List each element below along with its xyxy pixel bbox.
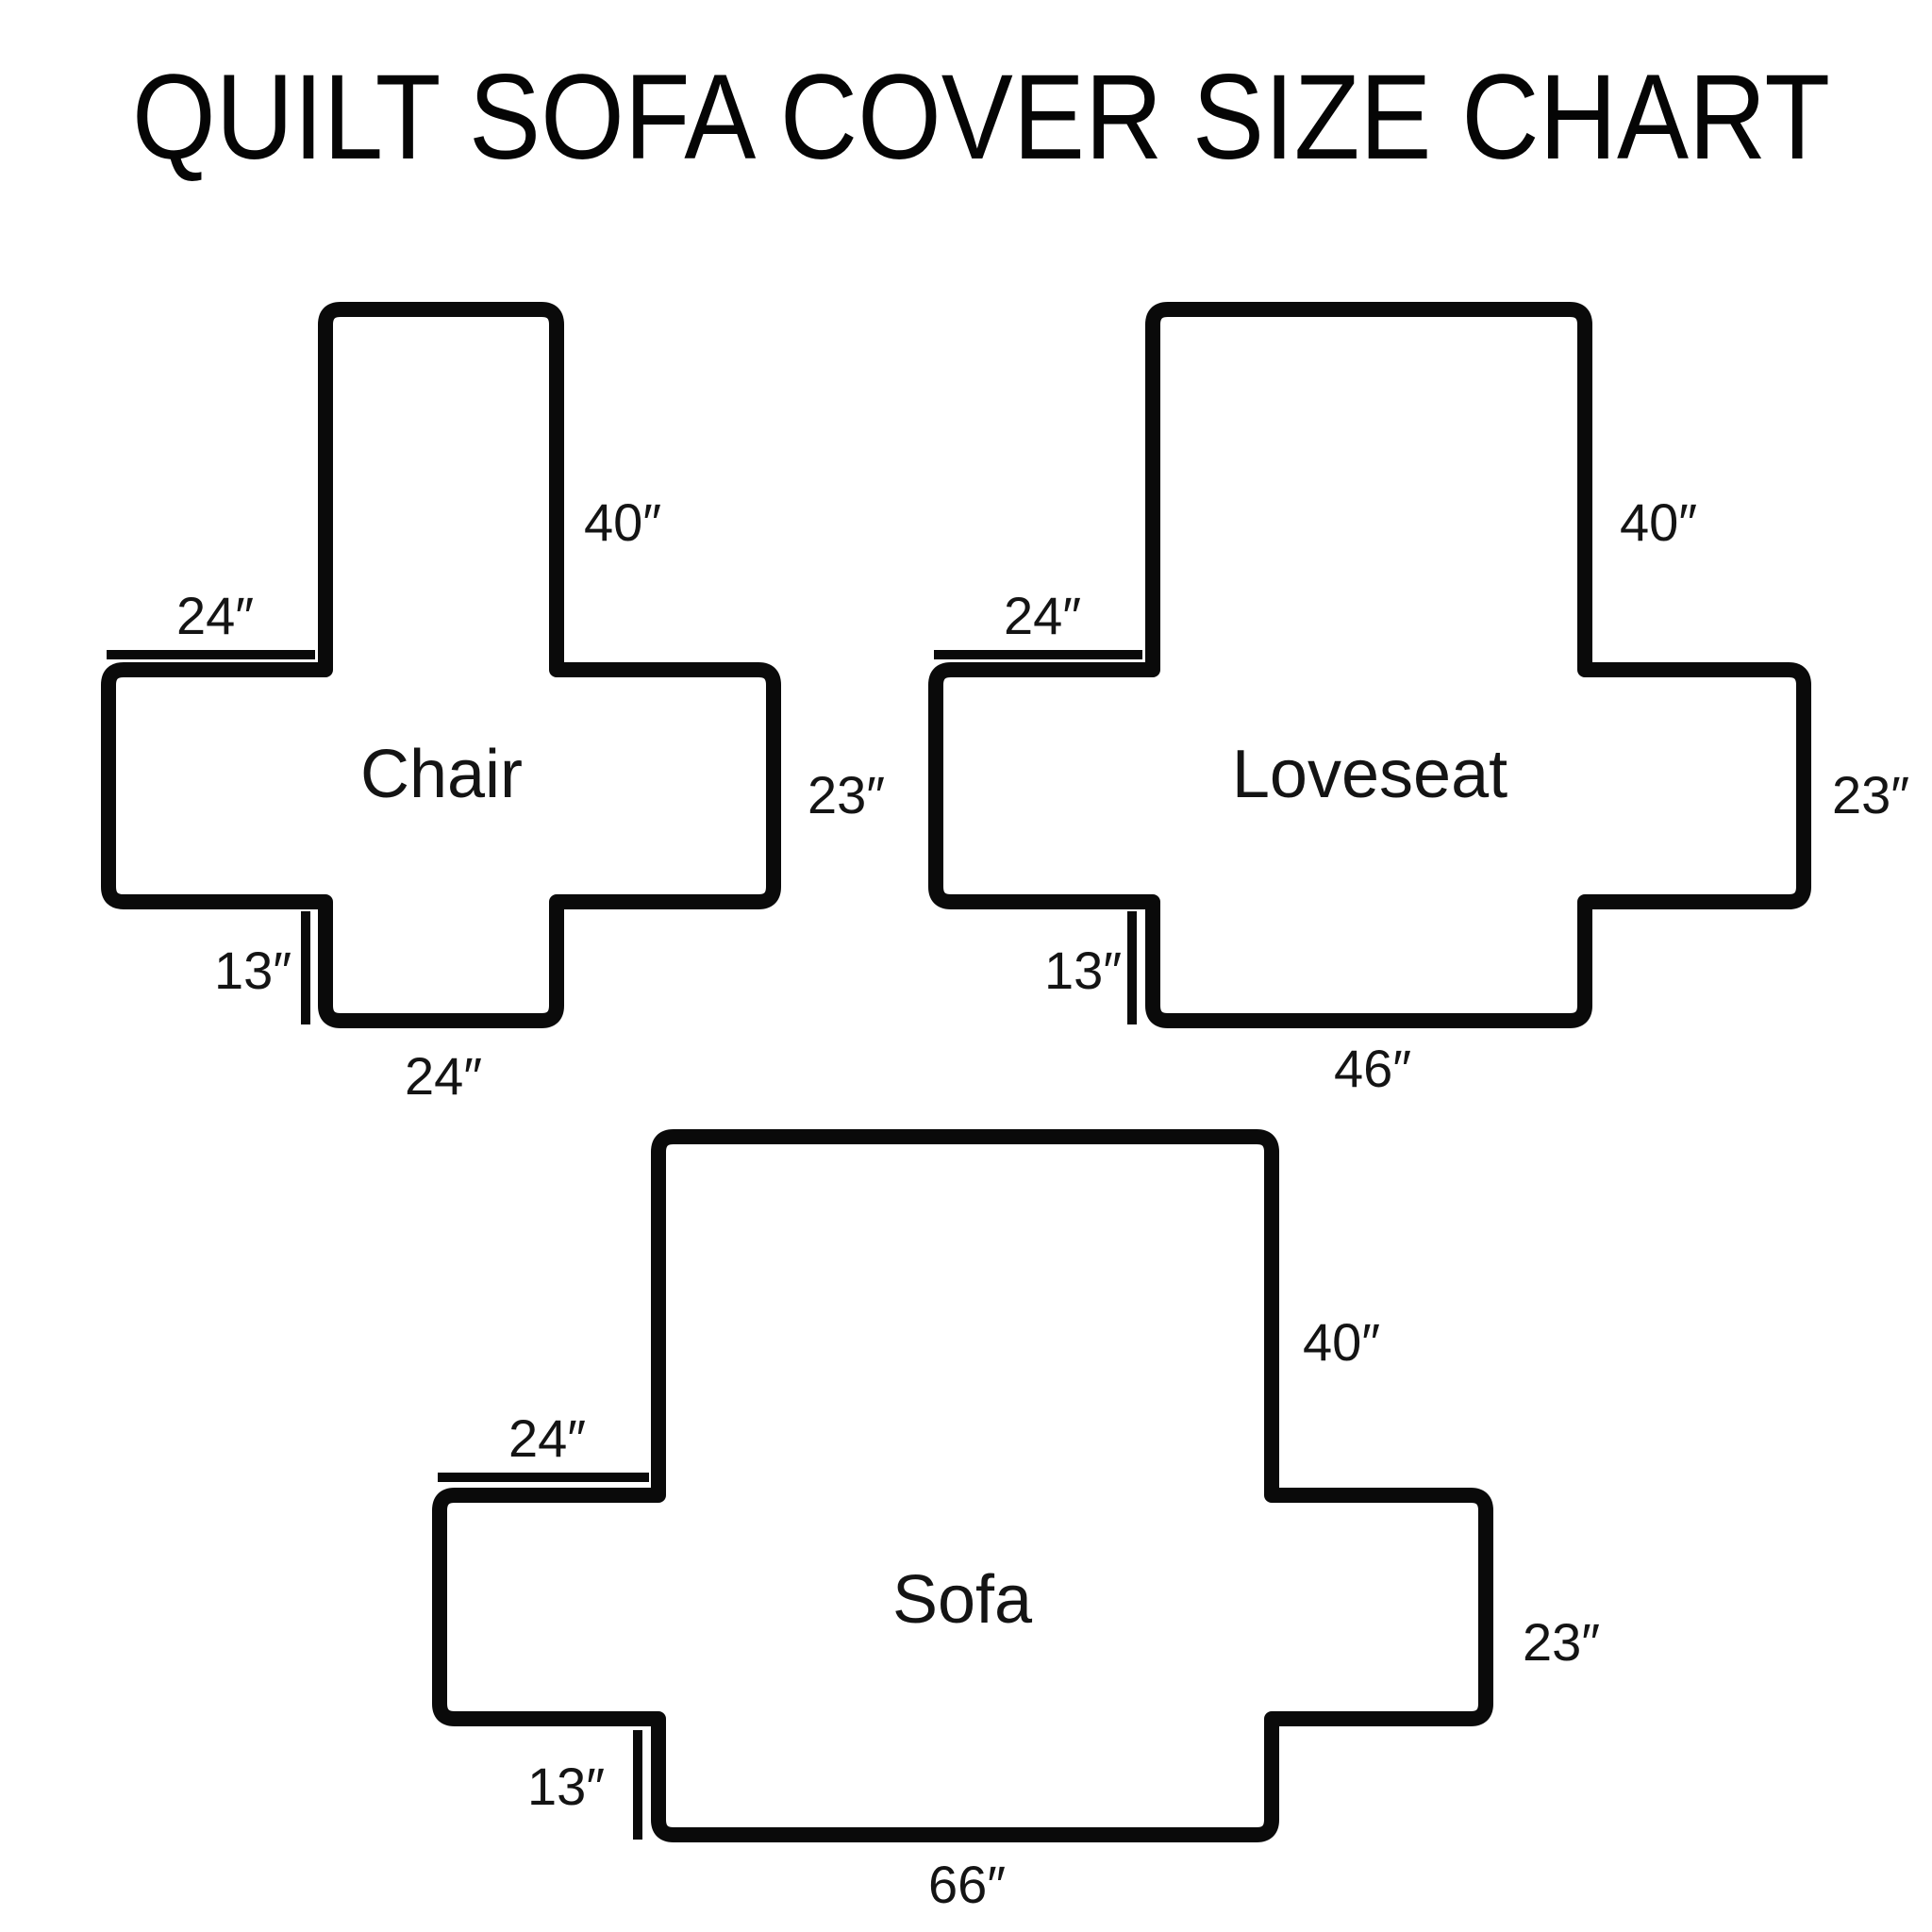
chair-arm-length-label: 24″ (176, 586, 254, 645)
loveseat-bottom-width-label: 46″ (1334, 1039, 1411, 1098)
chair-skirt-height-label: 13″ (214, 941, 291, 1000)
loveseat-skirt-height-label: 13″ (1044, 941, 1122, 1000)
chair-back-height-label: 40″ (584, 492, 661, 552)
size-chart-canvas: QUILT SOFA COVER SIZE CHART 40″ 24″ Chai… (0, 0, 1932, 1932)
sofa-arm-length-label: 24″ (508, 1408, 586, 1468)
chair-bottom-width-label: 24″ (405, 1046, 482, 1106)
chair-cover-outline (108, 309, 774, 1021)
loveseat-arm-length-label: 24″ (1004, 586, 1081, 645)
loveseat-side-height-label: 23″ (1832, 765, 1909, 824)
loveseat-name-label: Loveseat (1232, 737, 1507, 812)
chair-name-label: Chair (360, 737, 523, 812)
loveseat-back-height-label: 40″ (1620, 492, 1697, 552)
sofa-back-height-label: 40″ (1303, 1312, 1380, 1372)
loveseat-diagram: 40″ 24″ Loveseat 23″ 13″ 46″ (934, 309, 1909, 1098)
loveseat-cover-outline (936, 309, 1804, 1021)
page-title: QUILT SOFA COVER SIZE CHART (132, 50, 1830, 185)
sofa-side-height-label: 23″ (1523, 1612, 1600, 1672)
chair-side-height-label: 23″ (808, 765, 885, 824)
sofa-diagram: 40″ 24″ Sofa 23″ 13″ 66″ (438, 1137, 1600, 1914)
sofa-bottom-width-label: 66″ (928, 1855, 1006, 1914)
chair-diagram: 40″ 24″ Chair 23″ 13″ 24″ (107, 309, 885, 1106)
sofa-cover-outline (440, 1137, 1486, 1835)
sofa-name-label: Sofa (892, 1562, 1033, 1638)
sofa-skirt-height-label: 13″ (527, 1757, 605, 1816)
